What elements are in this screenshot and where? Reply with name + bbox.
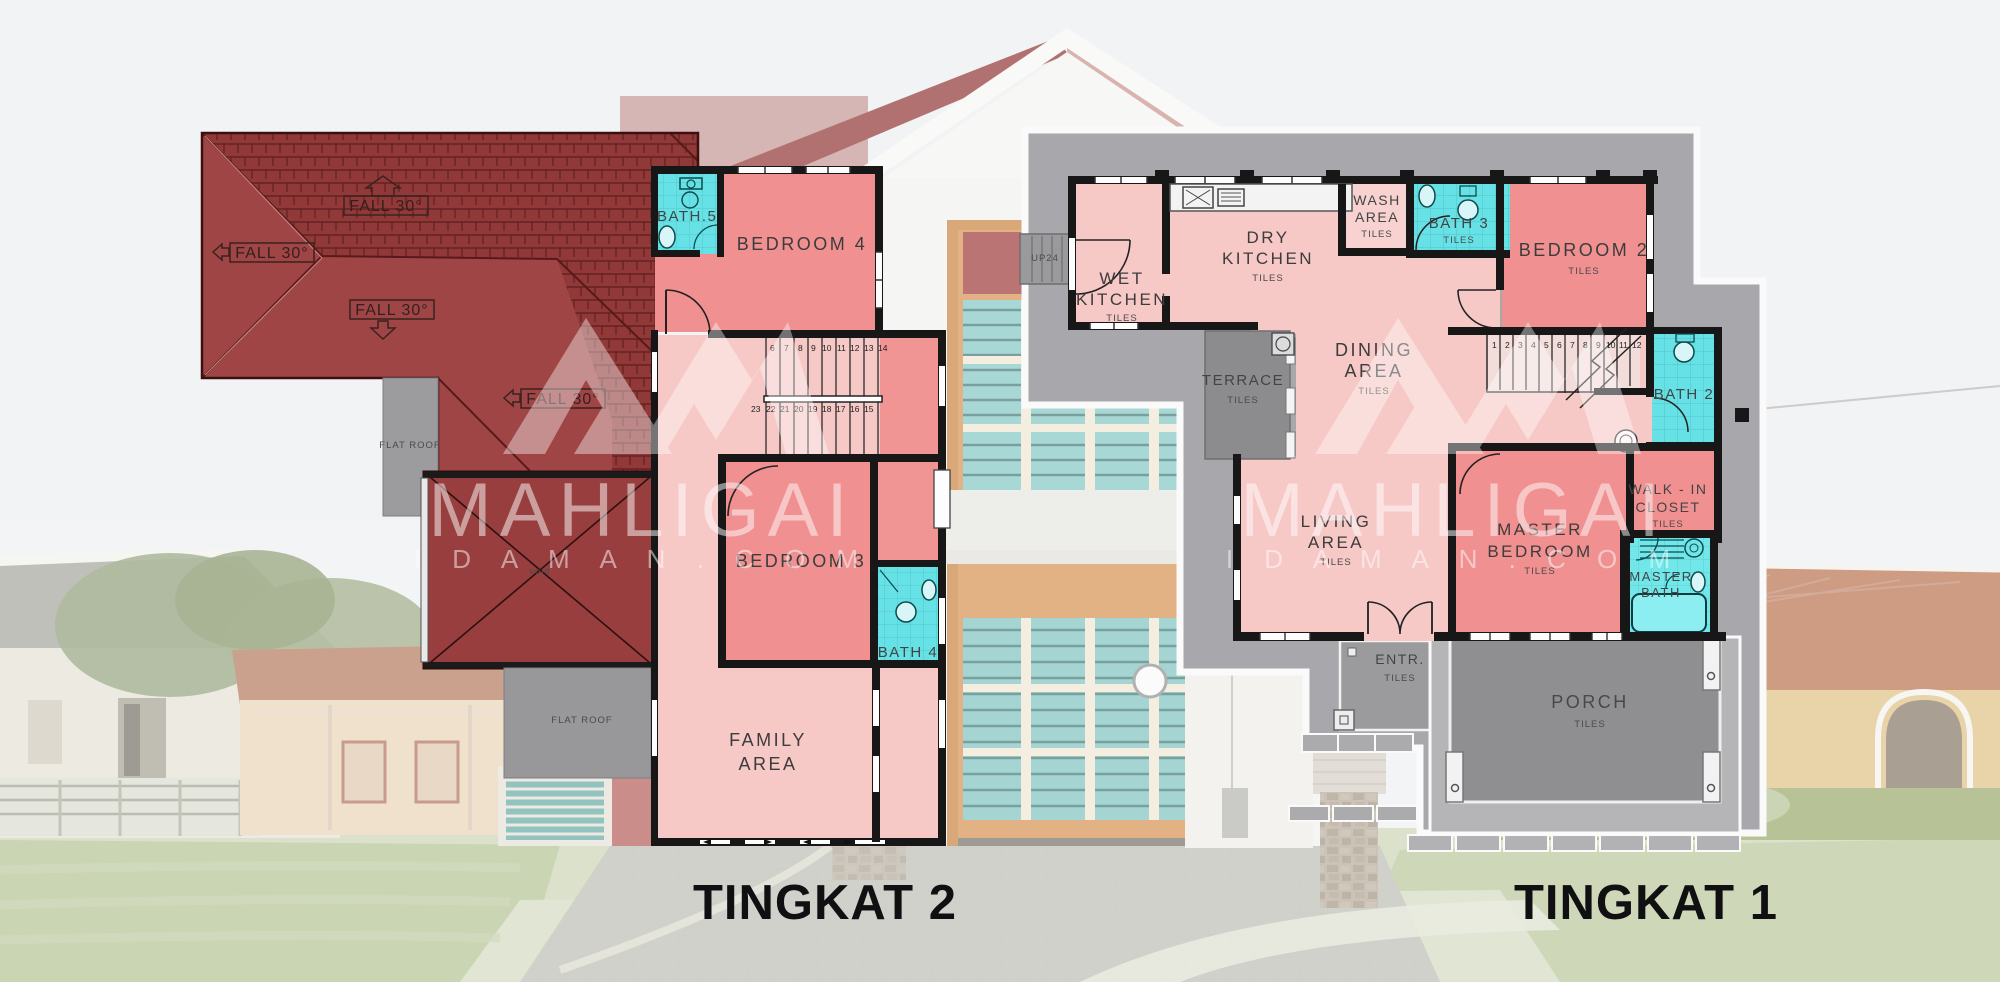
svg-text:TILES: TILES: [1443, 235, 1474, 246]
svg-text:6: 6: [1557, 340, 1562, 350]
svg-text:BEDROOM 2: BEDROOM 2: [1519, 240, 1650, 260]
svg-text:TILES: TILES: [1574, 719, 1605, 730]
svg-text:BATH 3: BATH 3: [1429, 215, 1489, 232]
svg-text:UP24: UP24: [1031, 253, 1059, 264]
svg-text:WET: WET: [1099, 269, 1144, 288]
svg-text:BEDROOM 4: BEDROOM 4: [737, 234, 868, 254]
svg-text:TINGKAT 2: TINGKAT 2: [693, 876, 957, 930]
svg-text:2: 2: [1505, 340, 1510, 350]
svg-text:15: 15: [864, 404, 874, 414]
svg-text:17: 17: [836, 404, 846, 414]
svg-text:10: 10: [822, 343, 832, 353]
svg-text:FALL 30°: FALL 30°: [349, 198, 422, 215]
svg-text:16: 16: [850, 404, 860, 414]
svg-text:PORCH: PORCH: [1551, 692, 1629, 712]
svg-text:23: 23: [751, 404, 761, 414]
svg-text:5: 5: [1544, 340, 1549, 350]
svg-text:TILES: TILES: [1106, 313, 1137, 324]
svg-text:MAHLIGAI: MAHLIGAI: [428, 468, 855, 553]
svg-text:12: 12: [1632, 340, 1642, 350]
svg-text:KITCHEN: KITCHEN: [1076, 290, 1168, 309]
svg-text:KITCHEN: KITCHEN: [1222, 249, 1314, 268]
svg-text:DRY: DRY: [1246, 228, 1289, 247]
svg-text:TERRACE: TERRACE: [1202, 372, 1284, 389]
svg-text:14: 14: [878, 343, 888, 353]
svg-text:FALL 30°: FALL 30°: [355, 302, 428, 319]
svg-text:TINGKAT 1: TINGKAT 1: [1514, 876, 1778, 930]
svg-text:9: 9: [811, 343, 816, 353]
svg-text:13: 13: [864, 343, 874, 353]
svg-text:8: 8: [798, 343, 803, 353]
svg-text:FLAT ROOF: FLAT ROOF: [379, 440, 440, 451]
svg-text:FLAT ROOF: FLAT ROOF: [551, 715, 612, 726]
svg-text:TILES: TILES: [1361, 229, 1392, 240]
svg-text:MAHLIGAI: MAHLIGAI: [1240, 468, 1667, 553]
svg-text:BATH 2: BATH 2: [1654, 386, 1714, 403]
svg-text:BATH: BATH: [1641, 585, 1681, 600]
svg-text:TILES: TILES: [1227, 395, 1258, 406]
svg-text:BATH.5: BATH.5: [657, 208, 717, 225]
svg-text:AREA: AREA: [1355, 209, 1399, 225]
svg-text:I D A M A N . C O M: I D A M A N . C O M: [414, 544, 870, 574]
svg-text:12: 12: [850, 343, 860, 353]
svg-text:TILES: TILES: [1384, 673, 1415, 684]
svg-text:BATH 4: BATH 4: [878, 644, 938, 661]
svg-text:TILES: TILES: [1568, 266, 1599, 277]
svg-text:18: 18: [822, 404, 832, 414]
svg-text:FAMILY: FAMILY: [729, 730, 807, 750]
svg-text:AREA: AREA: [738, 754, 797, 774]
svg-text:TILES: TILES: [1252, 273, 1283, 284]
svg-text:ENTR.: ENTR.: [1375, 651, 1425, 667]
svg-text:FALL 30°: FALL 30°: [235, 245, 308, 262]
svg-text:WASH: WASH: [1353, 192, 1400, 208]
svg-text:11: 11: [837, 343, 846, 353]
svg-text:I D A M A N . C O M: I D A M A N . C O M: [1226, 544, 1682, 574]
svg-text:7: 7: [1570, 340, 1575, 350]
svg-text:1: 1: [1492, 340, 1497, 350]
